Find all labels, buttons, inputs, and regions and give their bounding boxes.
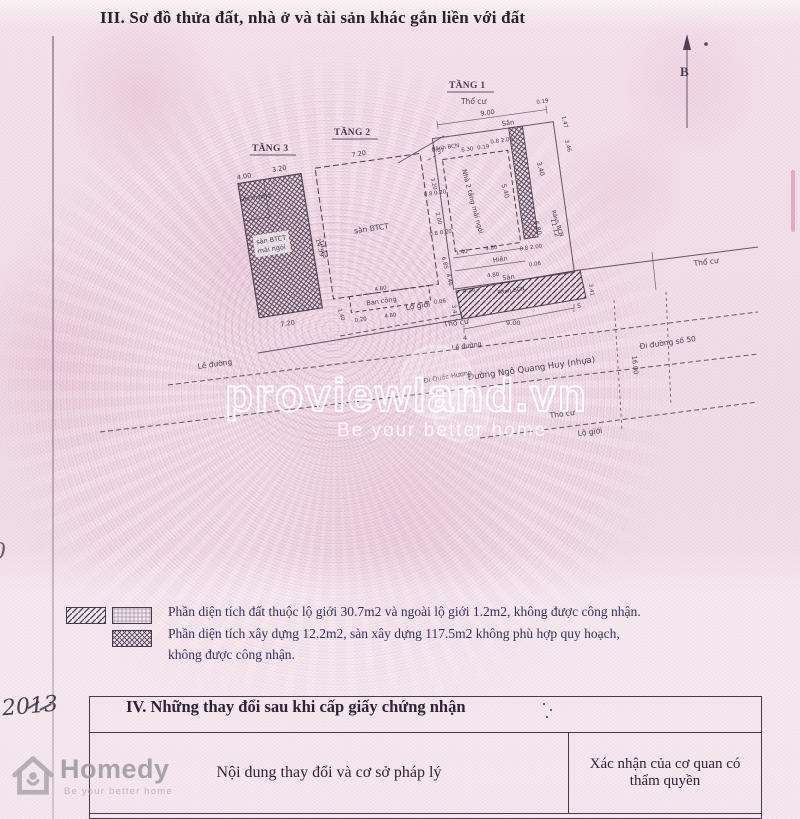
dim-label: 4.80: [485, 245, 498, 253]
road-limit-label: Lộ giới: [405, 300, 431, 312]
homedy-brand: Homedy: [60, 754, 170, 785]
house-label: Nhà 2 tầng mái ngói: [460, 168, 485, 234]
handwritten-mark: 0: [0, 540, 6, 565]
floor1-title: TẦNG 1: [449, 78, 485, 91]
dim-label: 9.00: [506, 319, 520, 327]
dim-label: 2.00: [434, 212, 443, 226]
floor2-slab-label: sàn BTCT: [354, 221, 390, 235]
dim-label: 4.00: [236, 171, 252, 181]
section3-title: III. Sơ đồ thửa đất, nhà ở và tài sản kh…: [100, 8, 660, 28]
dim-label: 3.40: [535, 161, 546, 177]
dim-label: 1.40: [455, 249, 468, 257]
zone-label: Thổ cư: [692, 256, 720, 268]
dim-label: 0.19: [477, 144, 490, 152]
dim-label: 1.47: [560, 116, 569, 130]
dim-label: 4.80: [487, 272, 500, 280]
floor2-title: TẦNG 2: [334, 125, 370, 138]
floor3-title: TẦNG 3: [252, 141, 288, 154]
homedy-tagline: Be your better home: [64, 786, 173, 797]
certificate-page: III. Sơ đồ thửa đất, nhà ở và tài sản kh…: [0, 0, 800, 819]
homedy-house-icon: [8, 748, 58, 800]
road-limit-strip: [456, 270, 586, 319]
north-label: B: [680, 64, 689, 79]
legend-line-1: Phần diện tích đất thuộc lộ giới 30.7m2 …: [168, 604, 641, 620]
dim-label: 9.00: [480, 108, 495, 118]
ditch-label: Rãnh BCN: [432, 143, 460, 153]
section4-title: IV. Những thay đổi sau khi cấp giấy chứn…: [90, 697, 761, 733]
dim-label: 6.30: [461, 146, 474, 154]
proviewland-logo-icon: [385, 330, 505, 460]
dim-label: 7.20: [280, 318, 296, 328]
yard-label: Sân: [501, 118, 514, 128]
dim-label: 16.00: [630, 355, 640, 374]
homedy-watermark: Homedy Be your better home: [8, 748, 238, 808]
column-header-confirmation: Xác nhận của cơ quan có thẩm quyền: [568, 733, 761, 813]
dim-label: 0.20: [354, 316, 367, 324]
dim-label: 3.20: [429, 177, 438, 191]
dim-label: 0.06: [529, 261, 542, 269]
dim-label: 6.85: [440, 256, 449, 270]
proviewland-watermark: proviewland.vn Be your better home: [225, 368, 625, 442]
pen-marks: [543, 703, 545, 705]
dim-label: 3.41: [587, 283, 595, 296]
dim-label: 5: [577, 302, 581, 310]
legend-swatch-road-limit: [66, 607, 106, 624]
porch-label: Hiên: [492, 254, 508, 264]
dim-label: 0.8 0.20: [423, 189, 447, 198]
dim-label: 7.20: [351, 149, 366, 159]
north-arrow: B: [680, 34, 708, 128]
balcony-label: Ban công: [366, 295, 397, 307]
legend-line-3: không được công nhận.: [168, 647, 295, 663]
dim-label: 1.40: [336, 308, 346, 322]
dim-label: 3.20: [272, 164, 288, 174]
floor2-plan: 7.20 14.13 sàn BTCT 3.20 0.8 0.20 2.00 0…: [305, 139, 463, 328]
dim-label: 5.40: [500, 183, 511, 199]
dim-label: 0.8 0.20: [429, 229, 453, 238]
dim-label: 0.19: [536, 98, 549, 106]
dim-label: 0.06: [434, 298, 447, 306]
dim-label: 3.46: [563, 139, 572, 153]
legend-swatch-outside-limit: [112, 607, 152, 624]
legend-swatch-construction: [112, 630, 152, 647]
dim-label: 4.80: [384, 312, 397, 320]
zone-label: Thổ cư: [460, 97, 487, 106]
legend-line-2: Phần diện tích xây dựng 12.2m2, sàn xây …: [168, 626, 620, 642]
